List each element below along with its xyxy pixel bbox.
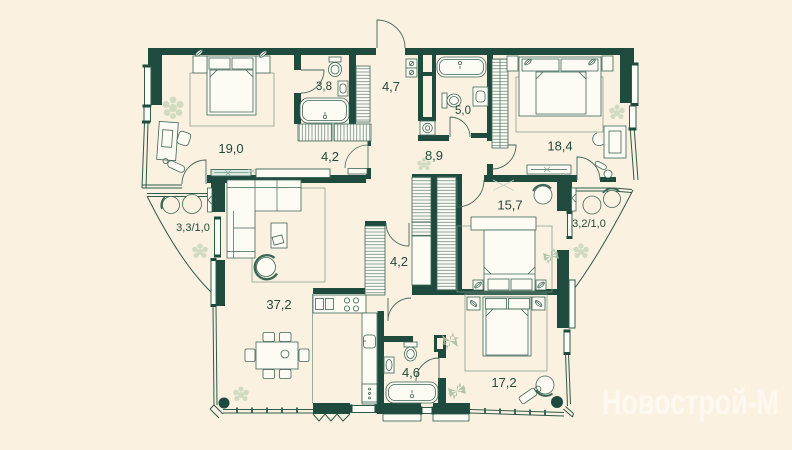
svg-text:3,2/1,0: 3,2/1,0	[572, 218, 606, 230]
svg-text:17,2: 17,2	[491, 375, 516, 390]
svg-text:4,7: 4,7	[382, 79, 400, 94]
svg-text:Новострой-М: Новострой-М	[602, 383, 779, 422]
svg-text:8,9: 8,9	[425, 148, 443, 163]
svg-text:5,0: 5,0	[455, 105, 471, 117]
svg-text:37,2: 37,2	[266, 297, 291, 312]
svg-text:18,4: 18,4	[547, 139, 572, 154]
svg-text:3,8: 3,8	[316, 81, 332, 93]
svg-text:4,2: 4,2	[390, 254, 408, 269]
svg-text:15,7: 15,7	[497, 198, 522, 213]
svg-text:4,2: 4,2	[321, 149, 339, 164]
svg-text:19,0: 19,0	[218, 141, 243, 156]
svg-text:3,3/1,0: 3,3/1,0	[176, 222, 210, 234]
svg-text:4,6: 4,6	[402, 365, 420, 380]
